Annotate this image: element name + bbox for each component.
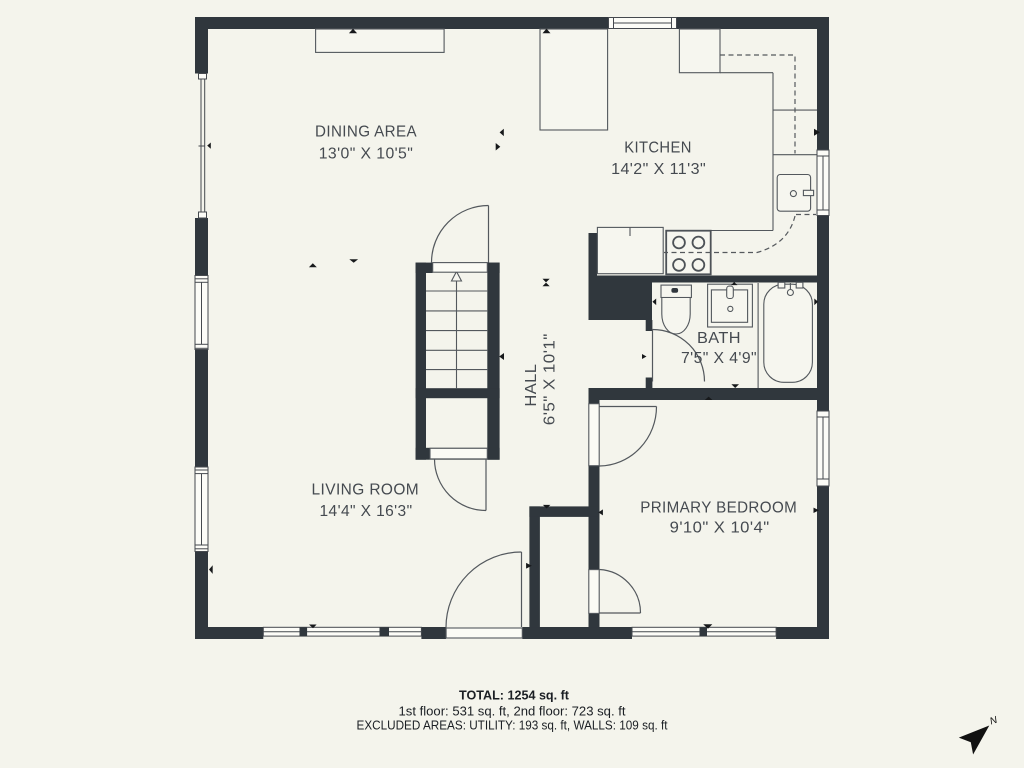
svg-text:14'2" X 11'3": 14'2" X 11'3" — [611, 161, 706, 178]
svg-text:1st floor: 531 sq. ft, 2nd flo: 1st floor: 531 sq. ft, 2nd floor: 723 sq… — [399, 704, 626, 719]
svg-text:KITCHEN: KITCHEN — [624, 140, 692, 157]
svg-text:DINING AREA: DINING AREA — [315, 124, 417, 141]
svg-text:N: N — [989, 715, 1000, 728]
svg-text:13'0" X 10'5": 13'0" X 10'5" — [319, 146, 414, 163]
svg-text:6'5" X 10'1": 6'5" X 10'1" — [541, 333, 558, 425]
svg-text:PRIMARY BEDROOM: PRIMARY BEDROOM — [640, 499, 797, 516]
svg-text:TOTAL: 1254 sq. ft: TOTAL: 1254 sq. ft — [459, 688, 570, 703]
svg-text:LIVING ROOM: LIVING ROOM — [312, 482, 420, 499]
svg-text:14'4" X 16'3": 14'4" X 16'3" — [320, 503, 413, 520]
svg-text:9'10" X 10'4": 9'10" X 10'4" — [670, 519, 770, 536]
svg-text:HALL: HALL — [523, 364, 540, 407]
svg-text:7'5" X 4'9": 7'5" X 4'9" — [681, 350, 757, 367]
svg-text:EXCLUDED AREAS: UTILITY: 193 s: EXCLUDED AREAS: UTILITY: 193 sq. ft, WAL… — [357, 718, 668, 733]
svg-text:BATH: BATH — [697, 330, 741, 347]
